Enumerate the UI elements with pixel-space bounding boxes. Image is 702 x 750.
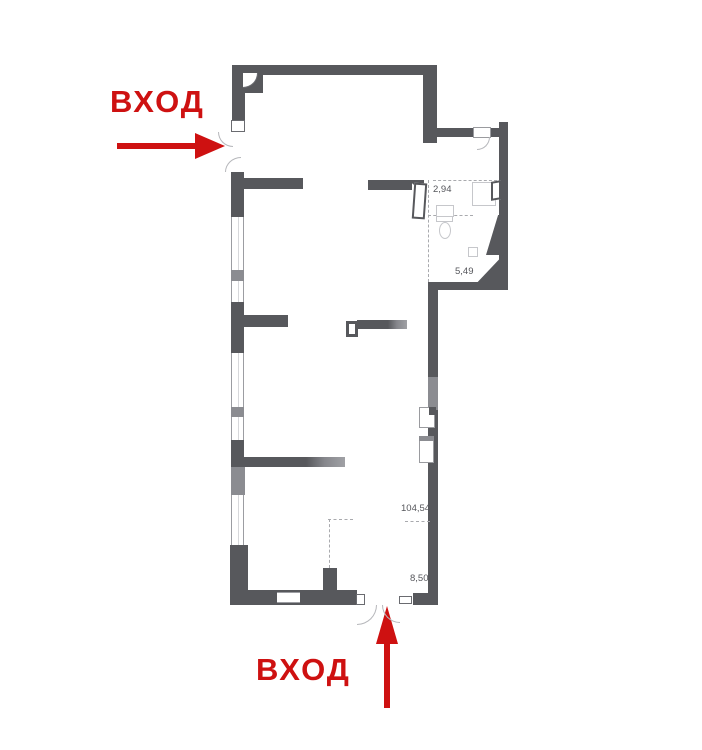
door-arc-left-2 [225, 157, 241, 172]
wall-freestanding [357, 320, 407, 329]
wall-step-vertical [423, 65, 437, 143]
wall-left-pier3 [231, 467, 245, 495]
door-frame-left-entrance [231, 120, 245, 132]
floor-plan: ВХОД ВХОД [0, 0, 702, 750]
entrance-left-arrow-shaft [117, 143, 197, 149]
dashed-partition-vertical [428, 180, 429, 282]
wall-interior-stub-top [243, 178, 303, 189]
door-arc-bottom-1 [357, 605, 377, 625]
wall-partition-bath [368, 180, 412, 190]
dashed-leader-hall [405, 521, 430, 522]
entrance-bottom-arrow-shaft [384, 640, 390, 708]
window-left-1 [231, 217, 244, 270]
wall-left-seg2 [231, 302, 244, 353]
wall-interior-lower [243, 457, 345, 467]
wall-stub-bottom [323, 568, 337, 595]
radiator-1-cap [429, 407, 436, 415]
drain-fixture [468, 247, 478, 257]
wall-interior-stub-mid [243, 315, 288, 327]
wall-left-pier2 [231, 407, 244, 417]
column-freestanding [346, 321, 358, 337]
door-arc-bathroom-top [477, 137, 490, 150]
window-left-3 [231, 353, 244, 407]
door-frame-bottom-left [356, 594, 365, 605]
dashed-zone-horizontal [328, 519, 353, 520]
window-left-2 [231, 281, 244, 302]
area-label-bath: 5,49 [455, 266, 474, 277]
door-leaf-wc [486, 215, 508, 255]
window-left-5 [231, 495, 244, 545]
wall-left-pier1 [231, 270, 244, 281]
shaft-niche [491, 180, 501, 201]
wall-right-pier [428, 377, 438, 410]
entrance-left-label: ВХОД [110, 84, 205, 120]
area-label-hall: 104,54 [401, 503, 430, 514]
window-bottom [277, 592, 300, 603]
door-leaf-bath-entry [412, 183, 427, 220]
door-frame-bottom-right [399, 596, 412, 604]
dashed-fixture-line [433, 180, 497, 181]
radiator-2-cap [419, 436, 434, 441]
area-label-wc: 2,94 [433, 184, 452, 195]
window-left-4 [231, 417, 244, 440]
dashed-zone-vertical [329, 519, 330, 568]
area-label-entry: 8,50 [410, 573, 429, 584]
toilet-bowl-fixture [439, 222, 451, 239]
entrance-bottom-label: ВХОД [256, 652, 351, 688]
